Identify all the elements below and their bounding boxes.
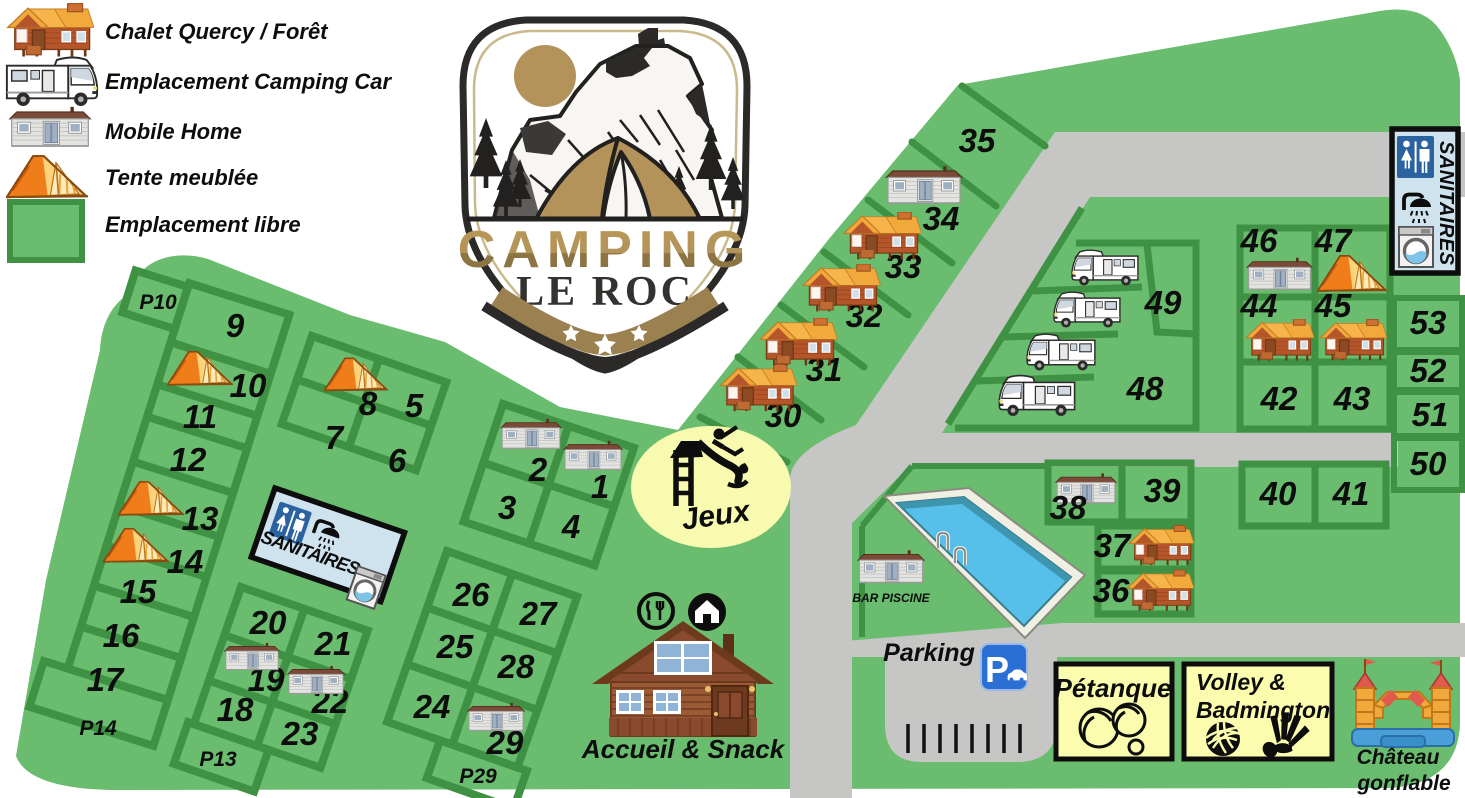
svg-text:51: 51 xyxy=(1412,396,1449,433)
svg-text:Emplacement libre: Emplacement libre xyxy=(105,212,301,237)
svg-text:43: 43 xyxy=(1333,380,1371,417)
svg-text:28: 28 xyxy=(497,648,535,685)
svg-text:gonflable: gonflable xyxy=(1356,772,1451,795)
svg-text:Badmington: Badmington xyxy=(1196,697,1330,723)
svg-text:SANITAIRES: SANITAIRES xyxy=(1435,141,1457,266)
svg-text:46: 46 xyxy=(1240,222,1278,259)
svg-text:52: 52 xyxy=(1410,352,1447,389)
svg-text:P: P xyxy=(985,649,1009,690)
svg-text:14: 14 xyxy=(167,543,204,580)
svg-text:1: 1 xyxy=(591,468,609,505)
svg-text:Emplacement Camping Car: Emplacement Camping Car xyxy=(105,69,393,94)
svg-text:5: 5 xyxy=(405,387,424,424)
svg-text:BAR PISCINE: BAR PISCINE xyxy=(852,591,930,605)
svg-text:45: 45 xyxy=(1314,287,1352,324)
svg-text:10: 10 xyxy=(230,367,267,404)
svg-text:P10: P10 xyxy=(139,291,177,314)
svg-text:47: 47 xyxy=(1314,222,1353,259)
svg-text:39: 39 xyxy=(1144,472,1181,509)
svg-text:25: 25 xyxy=(436,628,474,665)
svg-text:49: 49 xyxy=(1144,284,1182,321)
svg-text:38: 38 xyxy=(1050,489,1087,526)
svg-text:Accueil & Snack: Accueil & Snack xyxy=(581,734,786,764)
svg-text:Tente meublée: Tente meublée xyxy=(105,165,258,190)
svg-text:41: 41 xyxy=(1332,475,1370,512)
svg-text:48: 48 xyxy=(1126,370,1164,407)
svg-text:35: 35 xyxy=(959,122,996,159)
svg-text:15: 15 xyxy=(120,573,157,610)
svg-text:LE ROC: LE ROC xyxy=(516,269,694,315)
svg-text:37: 37 xyxy=(1094,527,1132,564)
svg-text:3: 3 xyxy=(498,489,516,526)
svg-text:24: 24 xyxy=(413,688,451,725)
svg-text:21: 21 xyxy=(314,625,352,662)
svg-text:Pétanque: Pétanque xyxy=(1054,673,1171,703)
svg-text:18: 18 xyxy=(217,691,254,728)
svg-text:40: 40 xyxy=(1259,475,1297,512)
svg-text:7: 7 xyxy=(325,419,345,456)
svg-text:P29: P29 xyxy=(459,765,497,788)
svg-text:16: 16 xyxy=(103,617,140,654)
svg-text:42: 42 xyxy=(1260,380,1298,417)
svg-text:50: 50 xyxy=(1410,445,1447,482)
svg-text:20: 20 xyxy=(249,604,287,641)
svg-text:Chalet Quercy / Forêt: Chalet Quercy / Forêt xyxy=(105,19,329,44)
svg-text:44: 44 xyxy=(1240,287,1278,324)
svg-text:53: 53 xyxy=(1410,304,1447,341)
svg-text:6: 6 xyxy=(388,442,407,479)
svg-text:P13: P13 xyxy=(199,748,237,771)
svg-text:2: 2 xyxy=(528,451,548,488)
svg-text:Mobile Home: Mobile Home xyxy=(105,119,242,144)
svg-text:13: 13 xyxy=(182,500,219,537)
svg-text:Château: Château xyxy=(1357,746,1440,769)
svg-text:27: 27 xyxy=(519,595,558,632)
svg-text:34: 34 xyxy=(923,200,960,237)
svg-text:Parking: Parking xyxy=(883,639,975,667)
svg-text:26: 26 xyxy=(452,576,490,613)
svg-text:11: 11 xyxy=(183,398,217,435)
svg-text:9: 9 xyxy=(226,307,245,344)
svg-text:23: 23 xyxy=(281,715,319,752)
svg-text:P14: P14 xyxy=(79,717,117,740)
svg-text:12: 12 xyxy=(170,441,207,478)
svg-text:17: 17 xyxy=(87,661,125,698)
svg-text:Volley &: Volley & xyxy=(1196,669,1286,695)
svg-text:36: 36 xyxy=(1093,572,1130,609)
svg-text:4: 4 xyxy=(561,508,580,545)
